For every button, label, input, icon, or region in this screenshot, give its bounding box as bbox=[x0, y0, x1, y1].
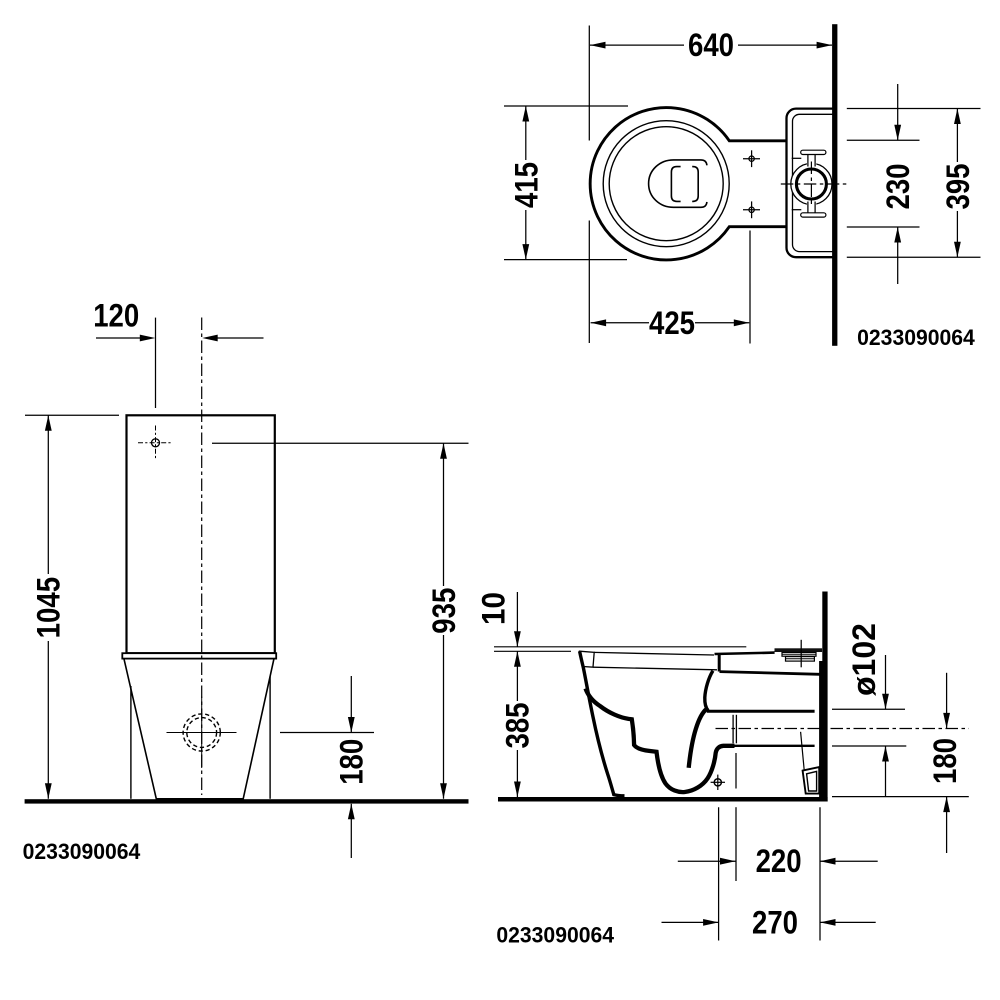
svg-text:0233090064: 0233090064 bbox=[857, 325, 975, 350]
svg-text:425: 425 bbox=[649, 305, 695, 341]
svg-text:1045: 1045 bbox=[30, 577, 66, 639]
svg-text:0233090064: 0233090064 bbox=[496, 922, 614, 947]
svg-text:395: 395 bbox=[940, 163, 976, 209]
svg-text:120: 120 bbox=[93, 297, 139, 333]
svg-text:180: 180 bbox=[927, 738, 963, 784]
svg-text:270: 270 bbox=[752, 904, 798, 940]
svg-text:935: 935 bbox=[426, 588, 462, 634]
svg-text:180: 180 bbox=[333, 739, 369, 785]
svg-text:230: 230 bbox=[880, 164, 916, 210]
svg-text:ø102: ø102 bbox=[846, 623, 882, 696]
svg-text:10: 10 bbox=[475, 592, 511, 625]
svg-text:640: 640 bbox=[688, 27, 734, 63]
svg-text:385: 385 bbox=[499, 702, 535, 748]
svg-text:415: 415 bbox=[508, 162, 544, 208]
svg-text:0233090064: 0233090064 bbox=[23, 839, 141, 864]
svg-text:220: 220 bbox=[756, 843, 802, 879]
